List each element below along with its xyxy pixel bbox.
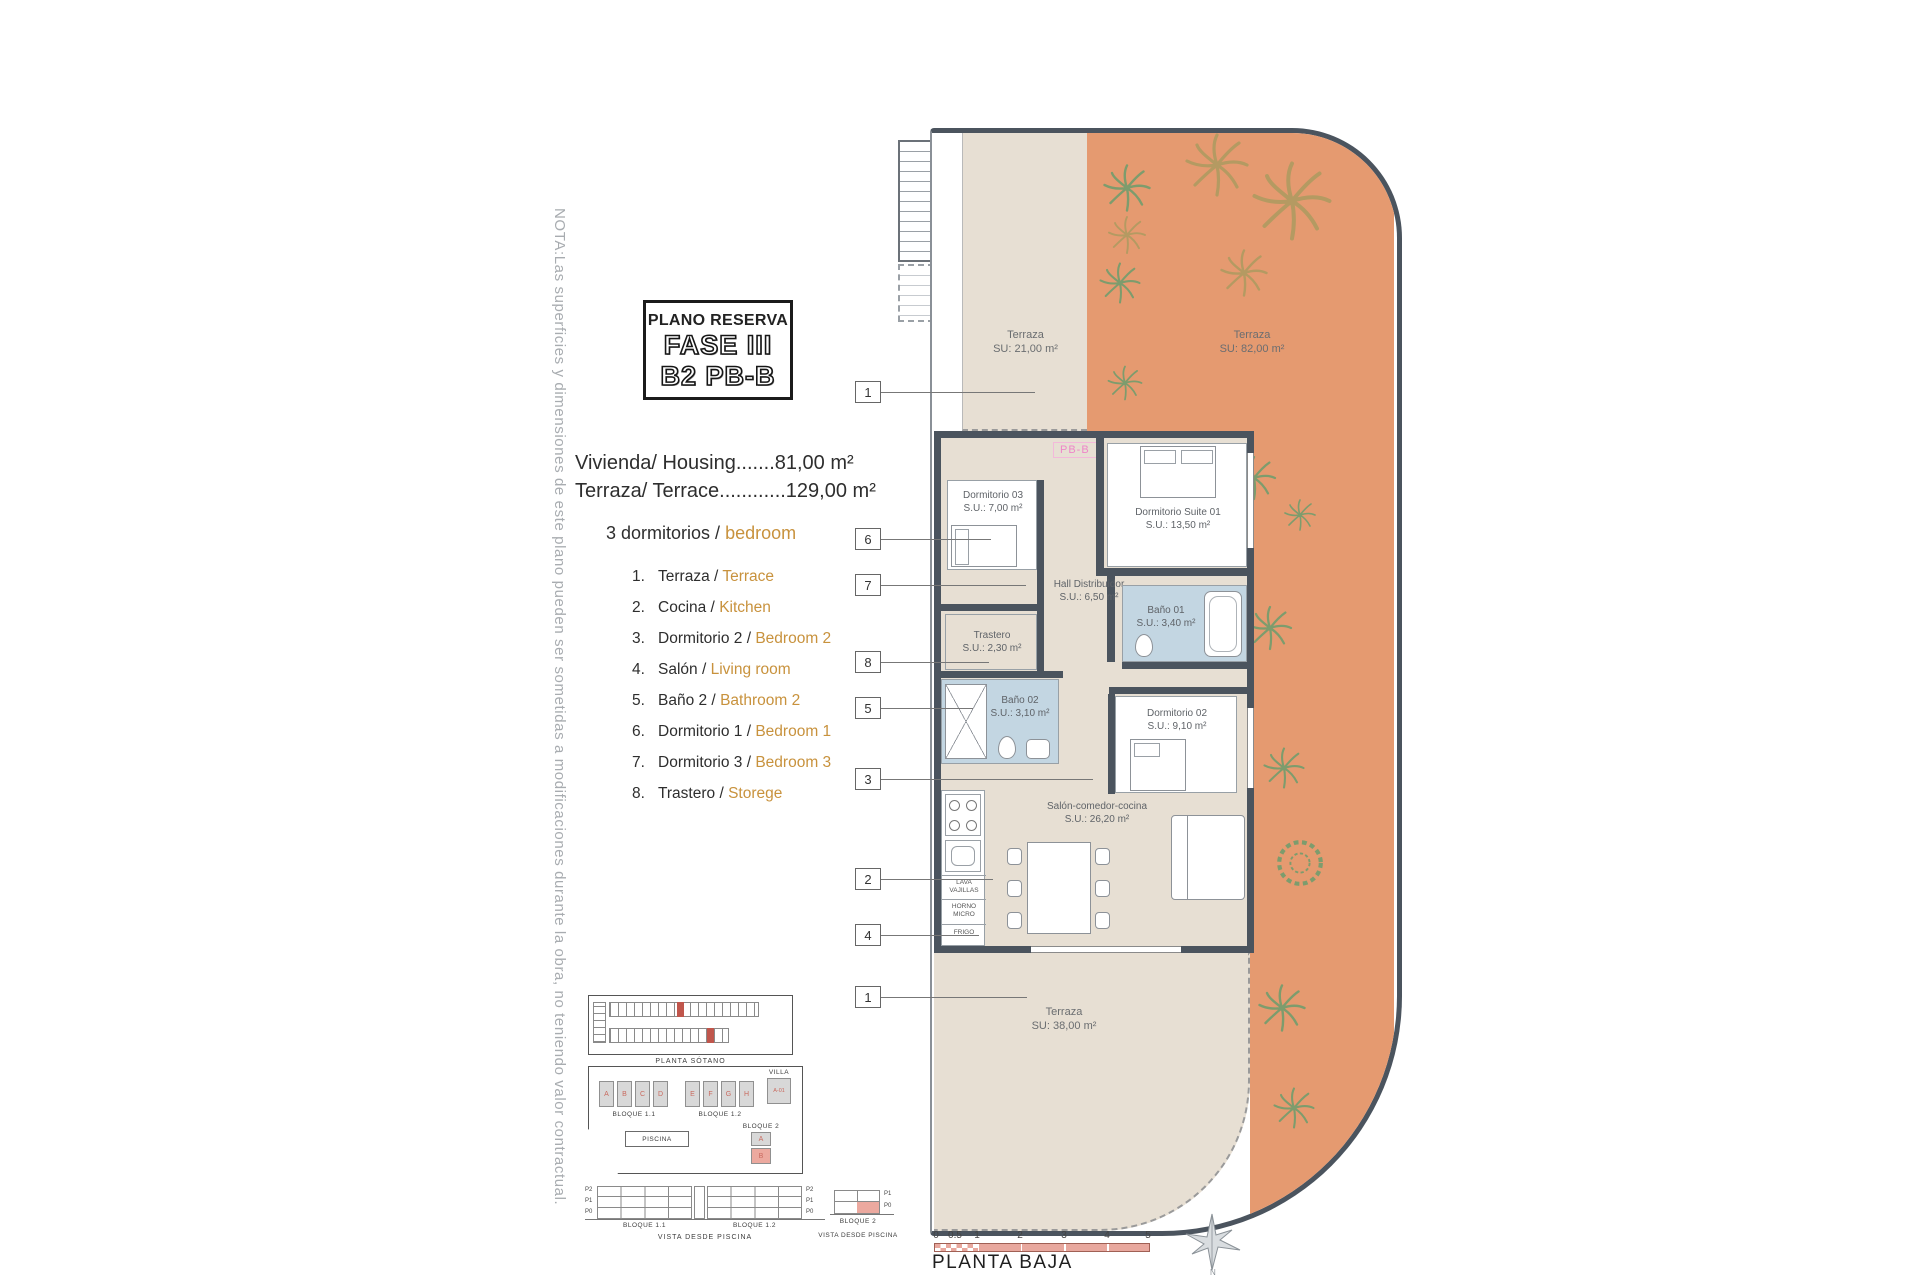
room-label-salon: Salón-comedor-cocinaS.U.: 26,20 m² (1027, 800, 1167, 826)
room-bano-01: Baño 01S.U.: 3,40 m² (1122, 585, 1247, 662)
chair (1095, 912, 1110, 929)
vista-caption: VISTA DESDE PISCINA (812, 1232, 904, 1239)
window (1247, 453, 1254, 548)
site-unit: H (739, 1081, 754, 1107)
chair (1007, 880, 1022, 897)
legend-item: 7.Dormitorio 3 / Bedroom 3 (632, 754, 831, 772)
room-label-dormitorio-03: Dormitorio 03S.U.: 7,00 m² (950, 489, 1036, 515)
surface-areas: Vivienda/ Housing.......81,00 m² Terraza… (575, 449, 876, 505)
lift-shaft (694, 1186, 705, 1219)
floor-label: P0 (585, 1209, 592, 1215)
toilet (1135, 634, 1153, 657)
elevation-diagram: P2 P1 P0 P2 P1 P0 BLOQUE 1.1 BLOQUE 1.2 … (585, 1186, 825, 1242)
kitchen-sink (945, 840, 981, 872)
bathtub (1204, 591, 1242, 657)
floor-label: P1 (884, 1191, 891, 1197)
wall (1108, 694, 1115, 794)
room-label-dormitorio-02: Dormitorio 02S.U.: 9,10 m² (1118, 707, 1236, 733)
site-unit: A (599, 1081, 614, 1107)
chair (1095, 880, 1110, 897)
disclaimer-note: NOTA:Las superficies y dimensiones de es… (551, 208, 568, 1108)
wall (1122, 662, 1247, 669)
leader-line (881, 779, 1093, 780)
room-bano-02: Baño 02S.U.: 3,10 m² (941, 679, 1059, 764)
appliance-label-oven: HORNO MICRO (942, 903, 986, 919)
bloque-1-2-label: BLOQUE 1.2 (683, 1111, 757, 1118)
apartment-unit: PB-B Dormitorio 03S.U.: 7,00 m² (934, 431, 1254, 953)
leader-line (881, 935, 979, 936)
housing-area: Vivienda/ Housing.......81,00 m² (575, 449, 876, 477)
compass-north-label: N (1210, 1268, 1216, 1277)
site-plan-diagram: A B C D BLOQUE 1.1 E F G H BLOQUE 1.2 VI… (588, 1066, 803, 1174)
leader-line (881, 997, 1027, 998)
wall (941, 604, 1041, 611)
floor-plan-sheet: NOTA:Las superficies y dimensiones de es… (0, 0, 1920, 1280)
appliance-label-dishwasher: LAVA VAJILLAS (942, 879, 986, 895)
wall (941, 671, 1063, 678)
terrace-38-zone: TerrazaSU: 38,00 m² (934, 953, 1250, 1231)
leader-line (881, 539, 991, 540)
title-block: PLANO RESERVA FASE III B2 PB-B (643, 300, 793, 400)
highlighted-unit: B (751, 1148, 771, 1164)
floor-label: P2 (806, 1187, 813, 1193)
elevation-grid-b11 (597, 1186, 692, 1219)
unit-label: B2 PB-B (646, 361, 790, 392)
callout-5: 5 (855, 697, 881, 719)
compass-rose: N (1180, 1212, 1244, 1278)
villa-unit: A-01 (767, 1078, 791, 1104)
floor-label: P0 (806, 1209, 813, 1215)
chair (1007, 912, 1022, 929)
window (1031, 946, 1181, 953)
toilet (998, 736, 1016, 759)
elevation-grid-b12 (707, 1186, 802, 1219)
bloque-2-elev-label: BLOQUE 2 (830, 1218, 886, 1225)
sheet-title: PLANO RESERVA (646, 312, 790, 330)
villa-label: VILLA (765, 1069, 793, 1076)
wall (1096, 438, 1104, 574)
ground-line (585, 1219, 825, 1220)
floor-plan: TerrazaSU: 21,00 m² TerrazaSU: 82,00 m² (930, 128, 1402, 1236)
basement-plan-diagram (588, 995, 793, 1055)
floor-label: P2 (585, 1187, 592, 1193)
wall (1096, 568, 1247, 576)
site-unit: E (685, 1081, 700, 1107)
room-label-bano-01: Baño 01S.U.: 3,40 m² (1127, 604, 1205, 630)
wall (1109, 687, 1247, 694)
plan-level-label: PLANTA BAJA (932, 1252, 1073, 1274)
site-unit: F (703, 1081, 718, 1107)
floor-label: P0 (884, 1203, 891, 1209)
callout-8: 8 (855, 651, 881, 673)
bloque-2-elevation-diagram: P1 P0 BLOQUE 2 VISTA DESDE PISCINA (830, 1190, 900, 1248)
parking-stalls (609, 1002, 759, 1017)
phase-label: FASE III (646, 330, 790, 361)
callout-3: 3 (855, 768, 881, 790)
site-unit: B (617, 1081, 632, 1107)
compass-star-icon (1180, 1212, 1244, 1272)
dining-table (1027, 842, 1091, 934)
legend-item: 4.Salón / Living room (632, 661, 831, 679)
callout-7: 7 (855, 574, 881, 596)
callout-1-top: 1 (855, 381, 881, 403)
bed (1130, 739, 1186, 791)
room-label-terraza-21: TerrazaSU: 21,00 m² (963, 328, 1088, 357)
leader-line (881, 585, 1026, 586)
bloque-2-label: BLOQUE 2 (739, 1123, 783, 1130)
window (1247, 708, 1254, 788)
leader-line (881, 662, 989, 663)
bloque-1-1-elev-label: BLOQUE 1.1 (597, 1222, 692, 1229)
leader-line (881, 708, 973, 709)
room-label-terraza-38: TerrazaSU: 38,00 m² (994, 1005, 1134, 1034)
highlighted-stall (677, 1002, 684, 1017)
bloque-1-1-label: BLOQUE 1.1 (597, 1111, 671, 1118)
leader-line (881, 392, 1035, 393)
bed (1140, 446, 1216, 498)
room-legend: 1.Terraza / Terrace 2.Cocina / Kitchen 3… (632, 568, 831, 803)
site-unit: C (635, 1081, 650, 1107)
legend-item: 3.Dormitorio 2 / Bedroom 2 (632, 630, 831, 648)
room-label-trastero: TrasteroS.U.: 2,30 m² (948, 629, 1036, 655)
highlighted-stall (707, 1028, 714, 1043)
scale-bar-graphic (934, 1243, 1150, 1252)
site-unit: A (751, 1132, 771, 1146)
ground-line (830, 1214, 894, 1215)
callout-2: 2 (855, 868, 881, 890)
room-label-bano-02: Baño 02S.U.: 3,10 m² (982, 694, 1058, 720)
terrace-82-zone (1087, 133, 1394, 431)
legend-item: 1.Terraza / Terrace (632, 568, 831, 586)
site-unit: G (721, 1081, 736, 1107)
bedrooms-headline: 3 dormitorios / bedroom (606, 523, 796, 544)
hob (945, 794, 981, 836)
terrace-area: Terraza/ Terrace............129,00 m² (575, 477, 876, 505)
room-dormitorio-03: Dormitorio 03S.U.: 7,00 m² (947, 480, 1037, 570)
basement-plan-label: PLANTA SÓTANO (588, 1058, 793, 1065)
bed (951, 525, 1017, 567)
terrace-21-zone: TerrazaSU: 21,00 m² (962, 133, 1087, 431)
callout-6: 6 (855, 528, 881, 550)
site-unit: D (653, 1081, 668, 1107)
floor-label: P1 (806, 1198, 813, 1204)
room-label-hall: Hall DistribuidorS.U.: 6,50 m² (1049, 578, 1129, 604)
vista-caption: VISTA DESDE PISCINA (585, 1234, 825, 1241)
callout-4: 4 (855, 924, 881, 946)
room-label-terraza-82: TerrazaSU: 82,00 m² (1182, 328, 1322, 357)
legend-item: 8.Trastero / Storege (632, 785, 831, 803)
parking-stalls (593, 1002, 606, 1043)
wall (1037, 480, 1044, 672)
legend-item: 6.Dormitorio 1 / Bedroom 1 (632, 723, 831, 741)
legend-item: 5.Baño 2 / Bathroom 2 (632, 692, 831, 710)
room-label-dormitorio-suite-01: Dormitorio Suite 01S.U.: 13,50 m² (1118, 506, 1238, 532)
shower (945, 684, 987, 759)
highlighted-unit (857, 1202, 879, 1213)
kitchen-counter: LAVA VAJILLAS HORNO MICRO FRIGO (941, 790, 985, 946)
bloque-1-2-elev-label: BLOQUE 1.2 (707, 1222, 802, 1229)
floor-label: P1 (585, 1198, 592, 1204)
leader-line (881, 879, 993, 880)
terrace-garden-strip (1250, 431, 1394, 1231)
chair (1095, 848, 1110, 865)
room-dormitorio-suite-01: Dormitorio Suite 01S.U.: 13,50 m² (1107, 443, 1247, 567)
unit-tag: PB-B (1053, 442, 1097, 458)
sofa (1171, 815, 1245, 900)
chair (1007, 848, 1022, 865)
legend-item: 2.Cocina / Kitchen (632, 599, 831, 617)
room-dormitorio-02: Dormitorio 02S.U.: 9,10 m² (1115, 696, 1237, 793)
sink (1026, 739, 1050, 759)
pool: PISCINA (625, 1131, 689, 1147)
callout-1-bottom: 1 (855, 986, 881, 1008)
